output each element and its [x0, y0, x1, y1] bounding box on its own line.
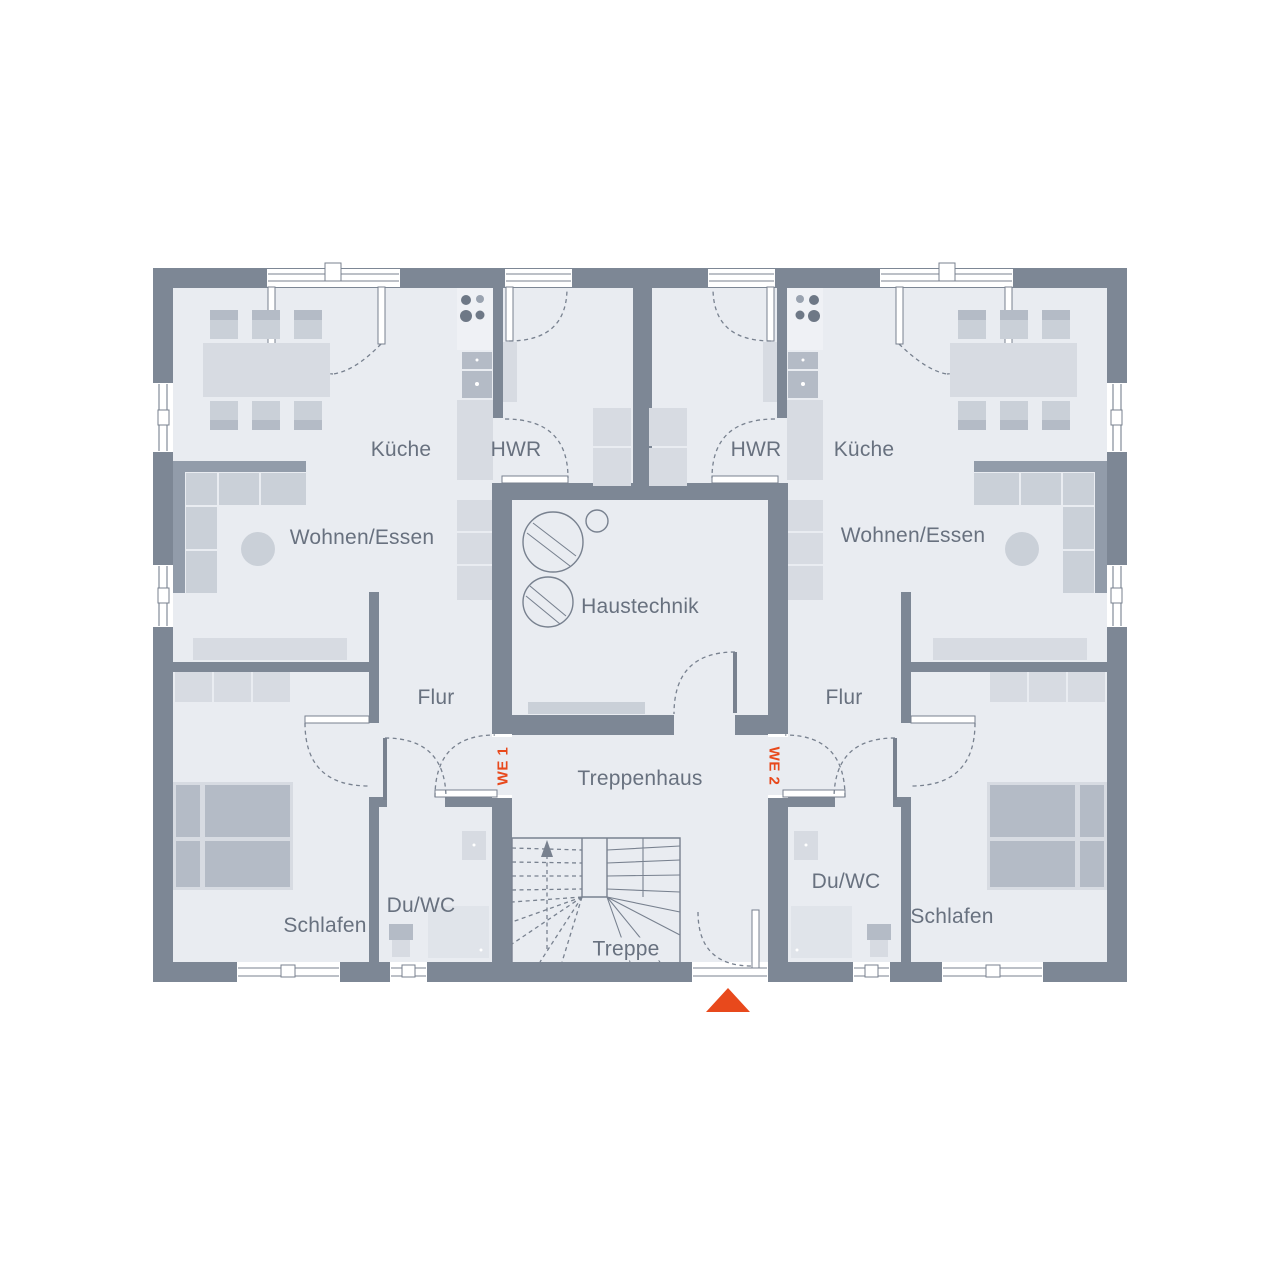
counter	[457, 566, 492, 600]
washer	[593, 408, 631, 446]
door-leaf	[752, 910, 759, 968]
counter	[788, 500, 823, 531]
door-frame-detail	[325, 263, 341, 281]
wall-segment	[777, 288, 787, 418]
wc	[392, 940, 410, 957]
window	[942, 962, 1043, 982]
wc	[867, 924, 891, 940]
window	[390, 962, 427, 982]
wall-segment	[901, 807, 911, 962]
room-label-kueche-we1: Küche	[371, 438, 432, 462]
room-label-wohnen-we2: Wohnen/Essen	[841, 524, 985, 548]
window	[153, 565, 173, 627]
room-label-hwr-we2: HWR	[731, 438, 782, 462]
counter	[457, 533, 492, 564]
window	[1107, 565, 1127, 627]
room-label-kueche-we2: Küche	[834, 438, 895, 462]
wall-segment	[735, 715, 788, 735]
door-leaf	[783, 790, 845, 797]
door-leaf	[435, 790, 497, 797]
dining-table	[950, 343, 1077, 397]
door-leaf	[911, 716, 975, 723]
door-leaf	[896, 287, 903, 344]
window	[237, 962, 340, 982]
unit-label-we2: WE 2	[766, 747, 783, 786]
entrance-marker-triangle	[706, 988, 750, 1012]
wall-segment	[369, 592, 379, 723]
room-label-schlafen-we1: Schlafen	[283, 914, 366, 938]
floor-plan-canvas: Küche HWR HWR Küche Wohnen/Essen Wohnen/…	[0, 0, 1280, 1280]
window-handle	[986, 965, 1000, 977]
wall-segment	[369, 807, 379, 962]
round-rug	[241, 532, 275, 566]
dresser	[990, 672, 1105, 702]
shower	[791, 906, 852, 958]
door-leaf	[502, 476, 568, 483]
wall-segment	[445, 797, 497, 807]
room-label-schlafen-we2: Schlafen	[910, 905, 993, 929]
window-handle	[281, 965, 295, 977]
wall-segment	[492, 797, 512, 962]
door-leaf	[383, 738, 387, 800]
wall-segment	[901, 592, 911, 723]
counter	[457, 500, 492, 531]
door-leaf	[305, 716, 369, 723]
sideboard	[193, 638, 347, 660]
door-frame-detail	[939, 263, 955, 281]
window	[853, 962, 890, 982]
room-label-duwc-we1: Du/WC	[387, 894, 456, 918]
kitchen-we2	[787, 288, 823, 600]
wc	[870, 940, 888, 957]
hwr-shelf	[503, 342, 517, 402]
door-leaf	[767, 287, 774, 341]
round-rug	[1005, 532, 1039, 566]
wall-segment	[493, 288, 503, 418]
window	[1107, 383, 1127, 452]
room-label-treppe: Treppe	[587, 937, 666, 960]
counter	[788, 566, 823, 600]
wc	[389, 924, 413, 940]
floor-plan-drawing	[0, 0, 1280, 1280]
kitchen-we1	[457, 288, 493, 600]
door-leaf	[893, 738, 897, 800]
wall-segment	[492, 483, 788, 500]
door-leaf	[378, 287, 385, 344]
shelf	[528, 702, 645, 714]
dresser	[175, 672, 290, 702]
wall-segment	[492, 715, 674, 735]
counter	[788, 533, 823, 564]
window-handle	[1111, 588, 1122, 603]
wall-segment	[783, 797, 835, 807]
room-label-flur-we1: Flur	[418, 686, 455, 710]
wall-segment	[492, 500, 512, 737]
room-label-duwc-we2: Du/WC	[812, 870, 881, 894]
double-bed	[987, 782, 1107, 890]
room-label-flur-we2: Flur	[826, 686, 863, 710]
wall-segment	[768, 797, 788, 962]
dining-table	[203, 343, 330, 397]
hwr-shelf	[763, 342, 777, 402]
window-handle	[1111, 410, 1122, 425]
wall-segment	[901, 662, 1110, 672]
sideboard	[933, 638, 1087, 660]
double-bed	[173, 782, 293, 890]
door-leaf	[506, 287, 513, 341]
room-label-wohnen-we1: Wohnen/Essen	[290, 526, 434, 550]
window-handle	[158, 410, 169, 425]
wall-segment	[768, 500, 788, 737]
wall-segment	[170, 662, 379, 672]
room-label-hwr-we1: HWR	[491, 438, 542, 462]
window	[153, 383, 173, 452]
window-handle	[865, 965, 878, 977]
counter	[457, 400, 493, 480]
window-handle	[158, 588, 169, 603]
window-handle	[402, 965, 415, 977]
dryer	[593, 448, 631, 486]
room-label-haustechnik: Haustechnik	[581, 595, 699, 619]
door-leaf	[733, 652, 737, 713]
room-label-treppenhaus: Treppenhaus	[577, 767, 702, 791]
washer	[649, 408, 687, 446]
dryer	[649, 448, 687, 486]
door-leaf	[712, 476, 778, 483]
unit-label-we1: WE 1	[495, 747, 512, 786]
counter	[787, 400, 823, 480]
